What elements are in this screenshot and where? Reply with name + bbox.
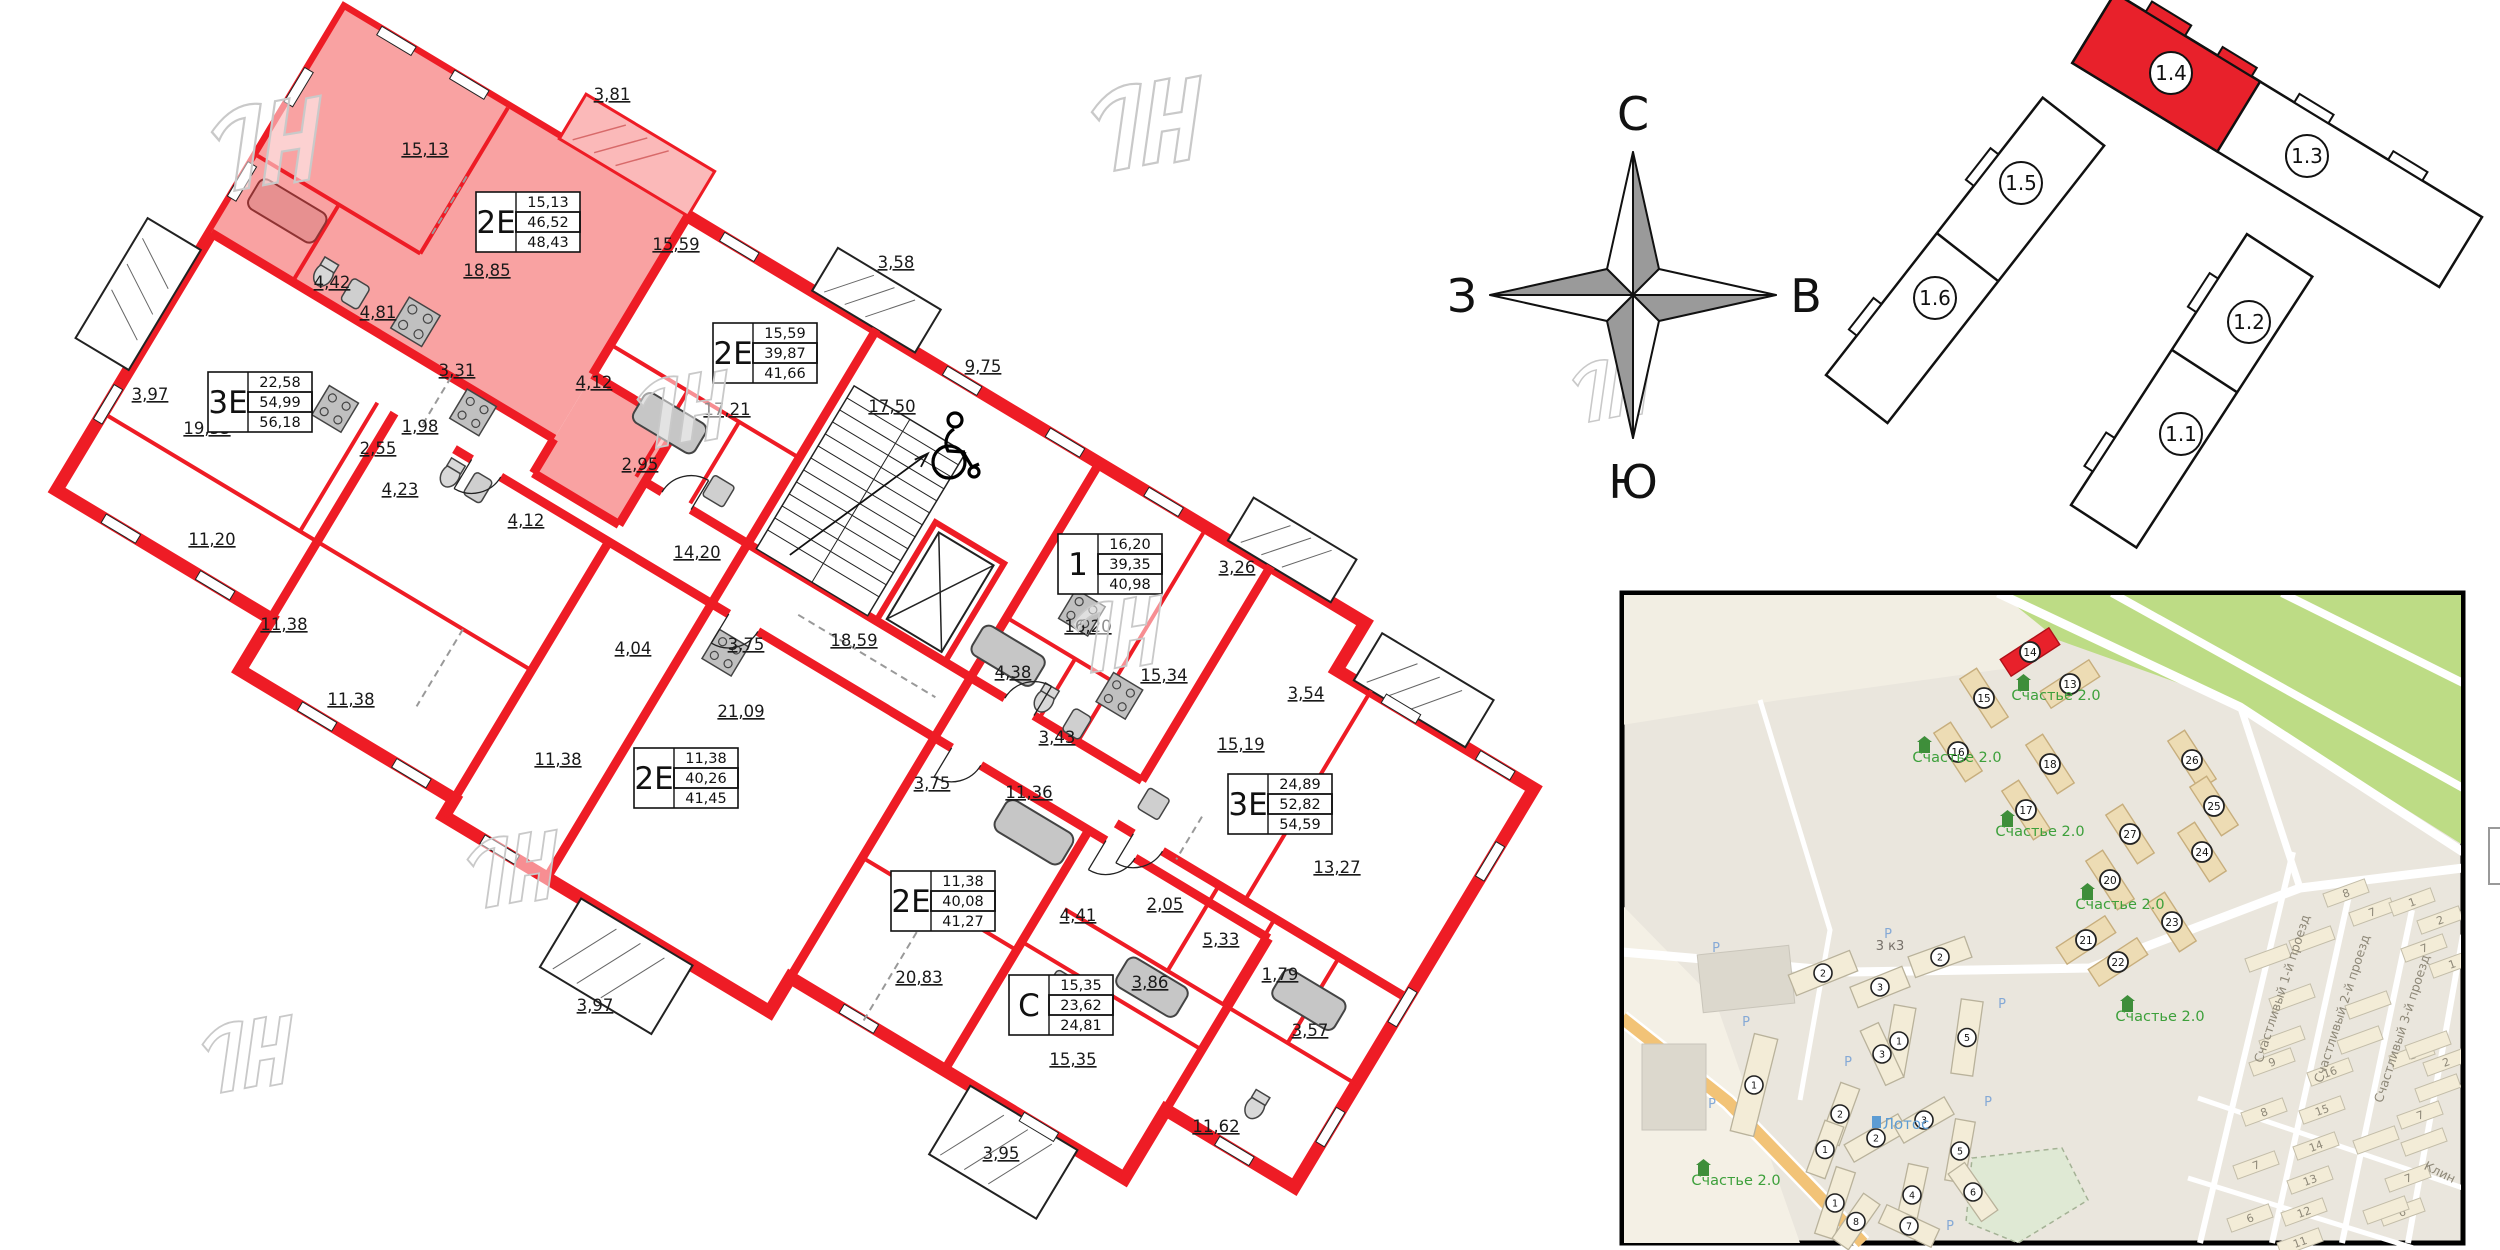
svg-text:22: 22 — [2111, 957, 2124, 969]
svg-text:15: 15 — [1977, 693, 1990, 705]
svg-text:Счастье 2.0: Счастье 2.0 — [2115, 1009, 2204, 1025]
apartment-area-value: 39,87 — [764, 346, 806, 362]
room-area-label: 3,31 — [439, 361, 476, 380]
room-area-label: 14,20 — [673, 543, 720, 562]
apartment-area-value: 11,38 — [942, 874, 984, 890]
building-sections-diagram: 1.41.31.51.61.21.1 — [1818, 0, 2488, 547]
room-area-label: 9,75 — [965, 357, 1002, 376]
room-area-label: 2,95 — [622, 455, 659, 474]
room-area-label: 1,79 — [1262, 965, 1299, 984]
section-1.1[interactable]: 1.1 — [2160, 413, 2202, 455]
apartment-type: 3Е — [1228, 787, 1267, 823]
svg-text:3: 3 — [1879, 1050, 1885, 1061]
apartment-area-value: 52,82 — [1279, 797, 1321, 813]
apartment-area-value: 24,89 — [1279, 777, 1321, 793]
svg-text:Счастье 2.0: Счастье 2.0 — [2011, 688, 2100, 704]
map-parking-icon: Р — [1946, 1219, 1954, 1234]
svg-text:1.5: 1.5 — [2005, 171, 2037, 195]
apartment-area-value: 54,59 — [1279, 817, 1321, 833]
apartment-area-value: 15,35 — [1060, 978, 1102, 994]
apartment-area-value: 41,66 — [764, 366, 806, 382]
room-area-label: 3,75 — [914, 774, 951, 793]
apartment-area-value: 23,62 — [1060, 998, 1102, 1014]
apartment-label-1[interactable]: 116,2039,3540,98 — [1058, 534, 1162, 594]
svg-text:24: 24 — [2195, 847, 2209, 859]
apartment-area-value: 16,20 — [1109, 537, 1151, 553]
apartment-area-value: 41,27 — [942, 914, 984, 930]
apartment-area-value: 41,45 — [685, 791, 727, 807]
room-area-label: 4,12 — [576, 373, 613, 392]
developer-logo-watermark — [1084, 76, 1201, 171]
svg-text:27: 27 — [2123, 829, 2136, 841]
apartment-area-value: 40,26 — [685, 771, 727, 787]
room-area-label: 2,55 — [360, 439, 397, 458]
apartment-type: С — [1018, 988, 1040, 1024]
apartment-area-value: 15,59 — [764, 326, 806, 342]
room-area-label: 3,57 — [1292, 1021, 1329, 1040]
scene: 15,133,8118,854,424,813,3115,593,584,122… — [0, 0, 2500, 1250]
map-parking-icon: Р — [1998, 997, 2006, 1012]
section-building-c — [2063, 229, 2313, 548]
apartment-area-value: 15,13 — [527, 195, 569, 211]
svg-text:1.4: 1.4 — [2155, 61, 2187, 85]
section-building-a — [2072, 0, 2488, 287]
room-area-label: 15,13 — [401, 140, 448, 159]
room-area-label: 11,62 — [1192, 1117, 1239, 1136]
room-area-label: 15,34 — [1140, 666, 1187, 685]
apartment-type: 3Е — [208, 385, 247, 421]
svg-text:Счастье 2.0: Счастье 2.0 — [1995, 824, 2084, 840]
room-area-label: 13,27 — [1313, 858, 1360, 877]
room-area-label: 15,59 — [652, 235, 699, 254]
apartment-type: 2Е — [713, 336, 752, 372]
room-area-label: 17,50 — [868, 397, 915, 416]
apartment-area-value: 56,18 — [259, 415, 301, 431]
svg-text:3: 3 — [1877, 983, 1883, 994]
svg-text:Счастье 2.0: Счастье 2.0 — [2075, 897, 2164, 913]
room-area-label: 4,23 — [382, 480, 419, 499]
svg-text:1: 1 — [1822, 1145, 1828, 1156]
section-1.6[interactable]: 1.6 — [1914, 277, 1956, 319]
map-parking-icon: Р — [1844, 1055, 1852, 1070]
map-parking-icon: Р — [1708, 1097, 1716, 1112]
room-area-label: 2,05 — [1147, 895, 1184, 914]
room-area-label: 5,33 — [1203, 930, 1240, 949]
room-area-label: 3,81 — [594, 85, 631, 104]
room-area-label: 3,58 — [878, 253, 915, 272]
svg-text:17: 17 — [2019, 805, 2032, 817]
svg-text:23: 23 — [2165, 917, 2178, 929]
apartment-area-value: 54,99 — [259, 395, 301, 411]
room-area-label: 18,59 — [830, 631, 877, 650]
apartment-label-С[interactable]: С15,3523,6224,81 — [1009, 975, 1113, 1035]
svg-text:Лотос: Лотос — [1883, 1115, 1930, 1133]
svg-text:6: 6 — [1970, 1188, 1976, 1199]
svg-text:7: 7 — [1906, 1222, 1912, 1233]
compass-label-east: В — [1790, 269, 1822, 323]
svg-text:5: 5 — [1957, 1147, 1963, 1158]
apartment-type: 2Е — [891, 884, 930, 920]
svg-text:5: 5 — [1964, 1033, 1970, 1044]
svg-text:1: 1 — [1751, 1081, 1757, 1092]
apartment-label-2Е[interactable]: 2Е11,3840,2641,45 — [634, 748, 738, 808]
map-parking-icon: Р — [1742, 1015, 1750, 1030]
section-1.4[interactable]: 1.4 — [2150, 52, 2192, 94]
svg-text:20: 20 — [2103, 875, 2116, 887]
apartment-area-value: 40,98 — [1109, 577, 1151, 593]
apartment-type: 1 — [1068, 547, 1088, 583]
section-1.5[interactable]: 1.5 — [2000, 162, 2042, 204]
svg-text:4: 4 — [1909, 1191, 1915, 1202]
compass-label-north: С — [1617, 87, 1649, 141]
svg-text:21: 21 — [2079, 935, 2092, 947]
svg-text:2: 2 — [1820, 969, 1826, 980]
svg-text:Счастье 2.0: Счастье 2.0 — [1691, 1173, 1780, 1189]
apartment-label-2Е[interactable]: 2Е15,1346,5248,43 — [476, 192, 580, 252]
room-area-label: 4,81 — [360, 303, 397, 322]
map-zoom-control-partial[interactable] — [2489, 828, 2500, 884]
map-parking-icon: Р — [1884, 927, 1892, 942]
room-area-label: 1,98 — [402, 417, 439, 436]
svg-text:1.2: 1.2 — [2233, 310, 2265, 334]
room-area-label: 11,38 — [260, 615, 307, 634]
room-area-label: 15,19 — [1217, 735, 1264, 754]
svg-text:1.6: 1.6 — [1919, 286, 1951, 310]
apartment-area-value: 22,58 — [259, 375, 301, 391]
room-area-label: 3,75 — [728, 635, 765, 654]
apartment-label-3Е[interactable]: 3Е22,5854,9956,18 — [208, 372, 312, 432]
room-area-label: 3,54 — [1288, 684, 1325, 703]
apartment-area-value: 48,43 — [527, 235, 569, 251]
apartment-selection-screen: 15,133,8118,854,424,813,3115,593,584,122… — [0, 0, 2500, 1250]
apartment-area-value: 11,38 — [685, 751, 727, 767]
svg-text:2: 2 — [1837, 1110, 1843, 1121]
svg-text:1: 1 — [1832, 1199, 1838, 1210]
apartment-label-3Е[interactable]: 3Е24,8952,8254,59 — [1228, 774, 1332, 834]
room-area-label: 3,26 — [1219, 558, 1256, 577]
apartment-type: 2Е — [476, 205, 515, 241]
room-area-label: 3,86 — [1132, 973, 1169, 992]
room-area-label: 4,42 — [314, 273, 351, 292]
room-area-label: 11,20 — [188, 530, 235, 549]
svg-text:1: 1 — [1896, 1037, 1902, 1048]
section-1.2[interactable]: 1.2 — [2228, 301, 2270, 343]
room-area-label: 18,85 — [463, 261, 510, 280]
apartment-label-2Е[interactable]: 2Е15,5939,8741,66 — [713, 323, 817, 383]
room-area-label: 4,04 — [615, 639, 652, 658]
room-area-label: 15,35 — [1049, 1050, 1096, 1069]
developer-logo-watermark — [196, 1015, 292, 1093]
room-area-label: 4,41 — [1060, 906, 1097, 925]
svg-text:25: 25 — [2207, 801, 2220, 813]
section-1.3[interactable]: 1.3 — [2286, 135, 2328, 177]
map-parking-lot — [1642, 1044, 1706, 1130]
apartment-label-2Е[interactable]: 2Е11,3840,0841,27 — [891, 871, 995, 931]
section-building-b — [1818, 91, 2104, 423]
room-area-label: 20,83 — [895, 968, 942, 987]
svg-text:8: 8 — [1853, 1217, 1859, 1228]
svg-text:14: 14 — [2023, 647, 2037, 659]
svg-text:1.1: 1.1 — [2165, 422, 2197, 446]
apartment-area-value: 24,81 — [1060, 1018, 1102, 1034]
room-area-label: 11,38 — [534, 750, 581, 769]
compass-label-south: Ю — [1608, 455, 1658, 509]
room-area-label: 11,38 — [327, 690, 374, 709]
svg-text:2: 2 — [1937, 953, 1943, 964]
room-area-label: 11,36 — [1005, 783, 1052, 802]
map-parking-icon: Р — [1984, 1095, 1992, 1110]
site-map[interactable]: 1413151618172625242720212223123215321231… — [1622, 593, 2475, 1250]
room-area-label: 3,97 — [577, 996, 614, 1015]
apartment-type: 2Е — [634, 761, 673, 797]
room-area-label: 4,12 — [508, 511, 545, 530]
apartment-area-value: 39,35 — [1109, 557, 1151, 573]
room-area-label: 21,09 — [717, 702, 764, 721]
room-area-label: 3,95 — [983, 1144, 1020, 1163]
svg-text:18: 18 — [2043, 759, 2056, 771]
svg-text:2: 2 — [1873, 1134, 1879, 1145]
apartment-area-value: 46,52 — [527, 215, 569, 231]
svg-text:1.3: 1.3 — [2291, 144, 2323, 168]
apartment-area-value: 40,08 — [942, 894, 984, 910]
map-parking-icon: Р — [1712, 941, 1720, 956]
compass-rose: СЮЗВ — [1447, 87, 1822, 509]
room-area-label: 4,38 — [995, 663, 1032, 682]
compass-label-west: З — [1447, 269, 1477, 323]
svg-text:26: 26 — [2185, 755, 2199, 767]
svg-text:Счастье 2.0: Счастье 2.0 — [1912, 750, 2001, 766]
room-area-label: 3,43 — [1039, 728, 1076, 747]
room-area-label: 3,97 — [132, 385, 169, 404]
